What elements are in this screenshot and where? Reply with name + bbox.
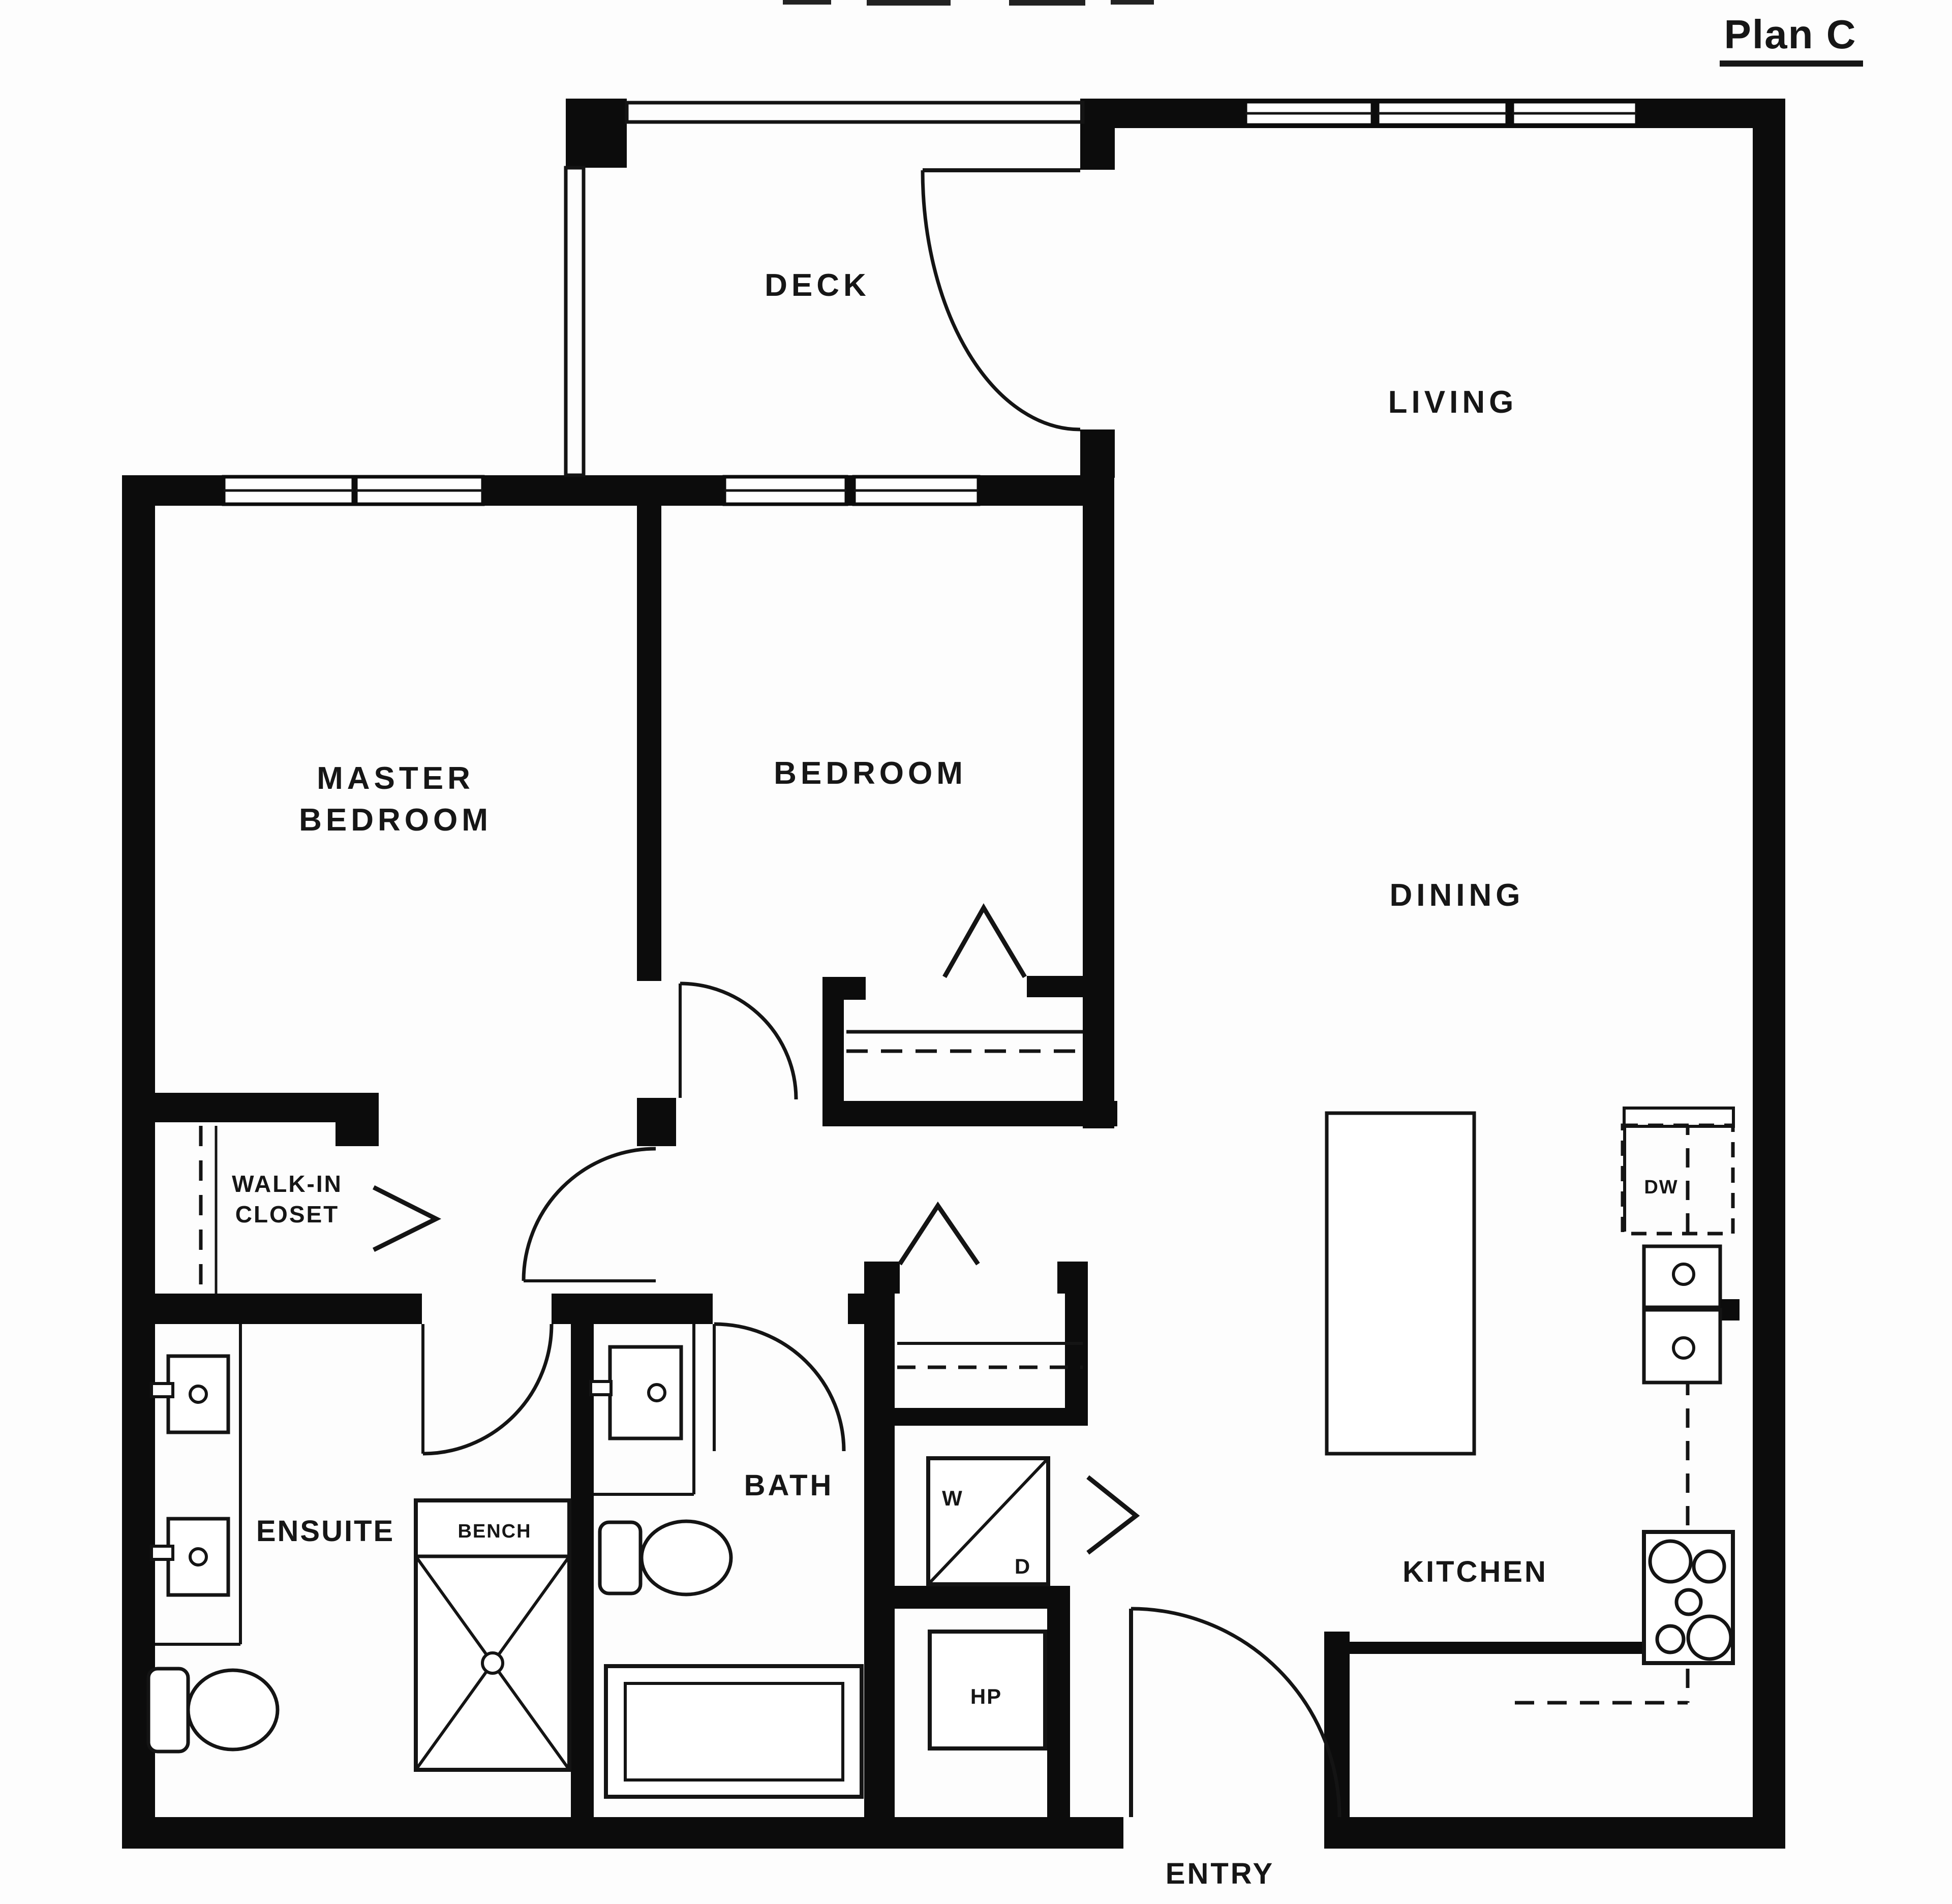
bedroom-door — [680, 984, 796, 1099]
master-bedroom-window — [356, 477, 483, 504]
deck-railing-left — [566, 168, 584, 475]
divider-stub — [637, 1098, 676, 1146]
master-bedroom-window — [224, 477, 353, 504]
bath-fixtures — [591, 1324, 862, 1797]
dryer-label: D — [1015, 1554, 1031, 1578]
floor-plan-sheet: Plan C DECK LIVING DINING MASTER BEDROOM… — [0, 0, 1952, 1904]
walk-in-closet-label-line2: CLOSET — [235, 1201, 340, 1227]
kitchen-label: KITCHEN — [1402, 1555, 1548, 1588]
hall-south-wall-b — [552, 1294, 713, 1324]
wall-right-outer — [1753, 99, 1785, 1849]
bath-tub — [606, 1666, 862, 1797]
ensuite-bath-divider-wall — [571, 1324, 594, 1817]
deck-label: DECK — [765, 268, 870, 303]
deck-living-divider-upper — [1080, 99, 1115, 170]
wd-closet-bifold-door — [1088, 1477, 1136, 1553]
deck-door — [923, 170, 1080, 429]
kitchen-entry-stub-wall — [1324, 1632, 1350, 1849]
master-bottom-wall-jog — [335, 1093, 379, 1146]
master-bedroom-label-line2: BEDROOM — [299, 803, 492, 838]
ensuite-sink — [151, 1519, 228, 1595]
bath-toilet — [600, 1521, 731, 1594]
closet-stack-left-wall — [864, 1294, 895, 1817]
shower-drain — [482, 1653, 503, 1673]
master-bedroom-door — [524, 1149, 656, 1281]
washer-label: W — [942, 1486, 963, 1510]
bath-sink — [591, 1347, 681, 1438]
wall-left-outer — [122, 475, 155, 1849]
stove-cooktop — [1644, 1532, 1733, 1663]
bench-label: BENCH — [457, 1521, 531, 1542]
bedroom-closet-bottom-wall — [822, 1101, 1117, 1126]
kitchen-counter-half-wall — [1350, 1642, 1644, 1654]
cropped-print-marks — [783, 0, 1154, 6]
entry-label: ENTRY — [1166, 1857, 1274, 1890]
deck-living-divider-lower — [1080, 429, 1115, 478]
master-bedroom-label-line1: MASTER — [317, 761, 474, 796]
kitchen-double-sink — [1644, 1246, 1740, 1383]
wall-bottom-right — [1342, 1817, 1785, 1849]
wd-hp-divider-band — [864, 1586, 1070, 1609]
master-bedroom-divider-wall — [637, 506, 661, 981]
kitchen-island — [1327, 1113, 1474, 1454]
deck-corner-block — [566, 99, 627, 168]
ensuite-sink — [151, 1356, 228, 1432]
ensuite-door — [423, 1324, 552, 1454]
bath-label: BATH — [744, 1469, 834, 1502]
hall-south-wall-a — [122, 1294, 422, 1324]
living-window — [1512, 102, 1637, 125]
heat-pump-label: HP — [970, 1684, 1002, 1708]
entry-door — [1131, 1609, 1339, 1817]
walk-in-closet-bifold-door — [374, 1187, 436, 1250]
closet-stack-right-wall-upper — [1065, 1288, 1088, 1423]
living-window — [1245, 102, 1372, 125]
bath-door — [714, 1324, 844, 1451]
bedroom-right-wall — [1083, 478, 1114, 1128]
hall-closet-left-jamb — [864, 1262, 900, 1294]
bedroom-window — [724, 477, 846, 504]
hall-closet-bifold-door — [900, 1206, 978, 1264]
linen-wd-divider-band — [864, 1408, 1088, 1426]
walk-in-closet-label-line1: WALK-IN — [232, 1171, 343, 1197]
plan-title: Plan C — [1724, 12, 1857, 57]
dishwasher-label: DW — [1644, 1177, 1678, 1198]
ensuite-label: ENSUITE — [256, 1515, 394, 1548]
bedroom-closet-bifold-door — [944, 908, 1025, 977]
bedroom-closet-right-jamb — [1027, 976, 1084, 997]
ensuite-toilet — [148, 1669, 278, 1752]
bedroom-window — [854, 477, 979, 504]
deck-railing-top — [627, 103, 1083, 122]
dining-label: DINING — [1390, 878, 1524, 913]
bedroom-label: BEDROOM — [774, 756, 967, 791]
floor-plan-drawing: Plan C DECK LIVING DINING MASTER BEDROOM… — [0, 0, 1952, 1904]
windows — [224, 102, 1637, 504]
wall-bottom-left — [122, 1817, 1123, 1849]
hp-closet-right-wall — [1047, 1586, 1070, 1817]
living-label: LIVING — [1388, 385, 1518, 420]
living-window — [1378, 102, 1507, 125]
